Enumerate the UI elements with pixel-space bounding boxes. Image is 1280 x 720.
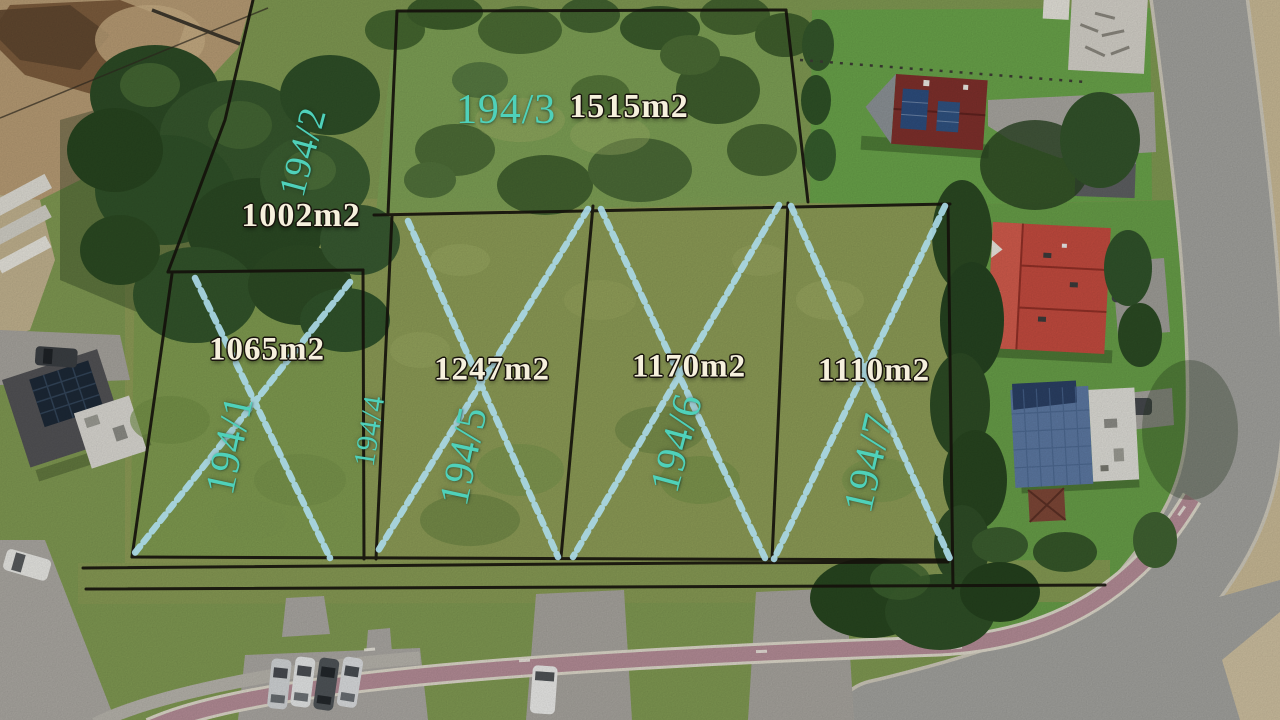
- area-label-194-5: 1247m2: [434, 352, 550, 389]
- area-label-194-7: 1110m2: [818, 353, 930, 390]
- boundary-194-2-bottom: [168, 270, 363, 272]
- area-label-194-3: 1515m2: [569, 88, 688, 126]
- aerial-plot-map: 194/1 194/2 194/3 194/4 194/5 194/6 194/…: [0, 0, 1280, 720]
- area-label-194-1: 1065m2: [209, 332, 325, 369]
- plot-number-label-194-3: 194/3: [456, 86, 556, 134]
- area-label-194-2: 1002m2: [241, 197, 360, 235]
- area-label-194-6: 1170m2: [632, 349, 746, 386]
- boundary-194-3-top: [398, 10, 786, 11]
